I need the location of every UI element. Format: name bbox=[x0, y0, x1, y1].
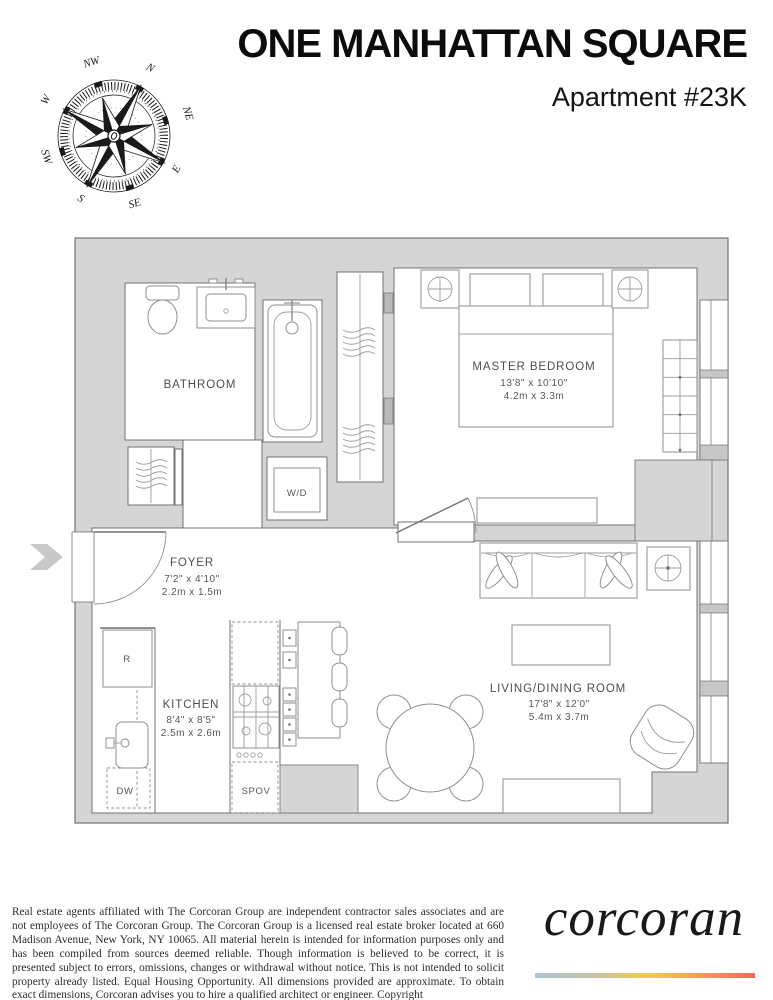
appliance-label-wd: W/D bbox=[287, 488, 307, 499]
foyer-dim-metric: 2.2m x 1.5m bbox=[162, 587, 223, 598]
master-bedroom-dim-imperial: 13'8" x 10'10" bbox=[500, 378, 567, 389]
bar-stool bbox=[332, 663, 347, 691]
foyer-dim-imperial: 7'2" x 4'10" bbox=[164, 574, 219, 585]
coffee-table bbox=[512, 625, 610, 665]
bedroom-console bbox=[477, 498, 597, 523]
pillow bbox=[543, 274, 603, 306]
room-label-master-bedroom: MASTER BEDROOM bbox=[472, 361, 595, 373]
room-label-kitchen: KITCHEN bbox=[163, 699, 220, 711]
window-sill bbox=[700, 681, 728, 696]
pillow bbox=[470, 274, 530, 306]
room-label-living-dining: LIVING/DINING ROOM bbox=[490, 683, 626, 695]
media-console bbox=[503, 779, 620, 813]
floorplan-page: N NE E SE S SW W NW ONE MANHATTAN SQUARE… bbox=[0, 0, 773, 1000]
side-table bbox=[647, 547, 690, 590]
sofa bbox=[480, 543, 637, 598]
closet-door bbox=[175, 449, 182, 505]
toilet bbox=[146, 286, 179, 334]
room-label-bathroom: BATHROOM bbox=[164, 379, 237, 391]
bedroom-door-opening bbox=[398, 522, 474, 542]
bar-stool bbox=[332, 699, 347, 727]
living-dining-dim-metric: 5.4m x 3.7m bbox=[529, 712, 590, 723]
appliance-label-refrigerator: R bbox=[123, 654, 130, 665]
wall-column bbox=[635, 460, 712, 541]
entry-arrow-icon bbox=[30, 544, 63, 570]
window-sill bbox=[700, 445, 728, 460]
bathtub bbox=[268, 300, 317, 437]
wall-kitchen-south bbox=[280, 765, 358, 813]
window-sill bbox=[700, 370, 728, 378]
stove bbox=[233, 686, 279, 757]
brand-gradient-bar bbox=[535, 973, 755, 978]
corcoran-logo: corcoran bbox=[533, 888, 755, 948]
sliding-door-handle bbox=[384, 293, 393, 313]
master-bedroom-dim-metric: 4.2m x 3.3m bbox=[504, 391, 565, 402]
dining-set bbox=[377, 695, 483, 801]
sliding-door-handle bbox=[384, 398, 393, 424]
bathroom-vestibule bbox=[183, 440, 262, 540]
nightstand-left bbox=[421, 270, 459, 308]
legal-disclaimer: Real estate agents affiliated with The C… bbox=[12, 906, 504, 1000]
living-dining-dim-imperial: 17'8" x 12'0" bbox=[528, 699, 589, 710]
dining-table bbox=[386, 704, 474, 792]
kitchen-dim-metric: 2.5m x 2.6m bbox=[161, 728, 222, 739]
window-sill bbox=[700, 604, 728, 613]
floor-plan: BATHROOM W/D FOYER 7'2" x 4'10" 2.2m x 1… bbox=[0, 0, 773, 1000]
bar-stool bbox=[332, 627, 347, 655]
dresser bbox=[663, 340, 697, 452]
room-label-foyer: FOYER bbox=[170, 557, 214, 569]
kitchen-dim-imperial: 8'4" x 8'5" bbox=[166, 715, 215, 726]
appliance-label-speed-oven: SPOV bbox=[242, 786, 271, 797]
nightstand-right bbox=[612, 270, 648, 308]
appliance-label-dishwasher: DW bbox=[116, 786, 133, 797]
